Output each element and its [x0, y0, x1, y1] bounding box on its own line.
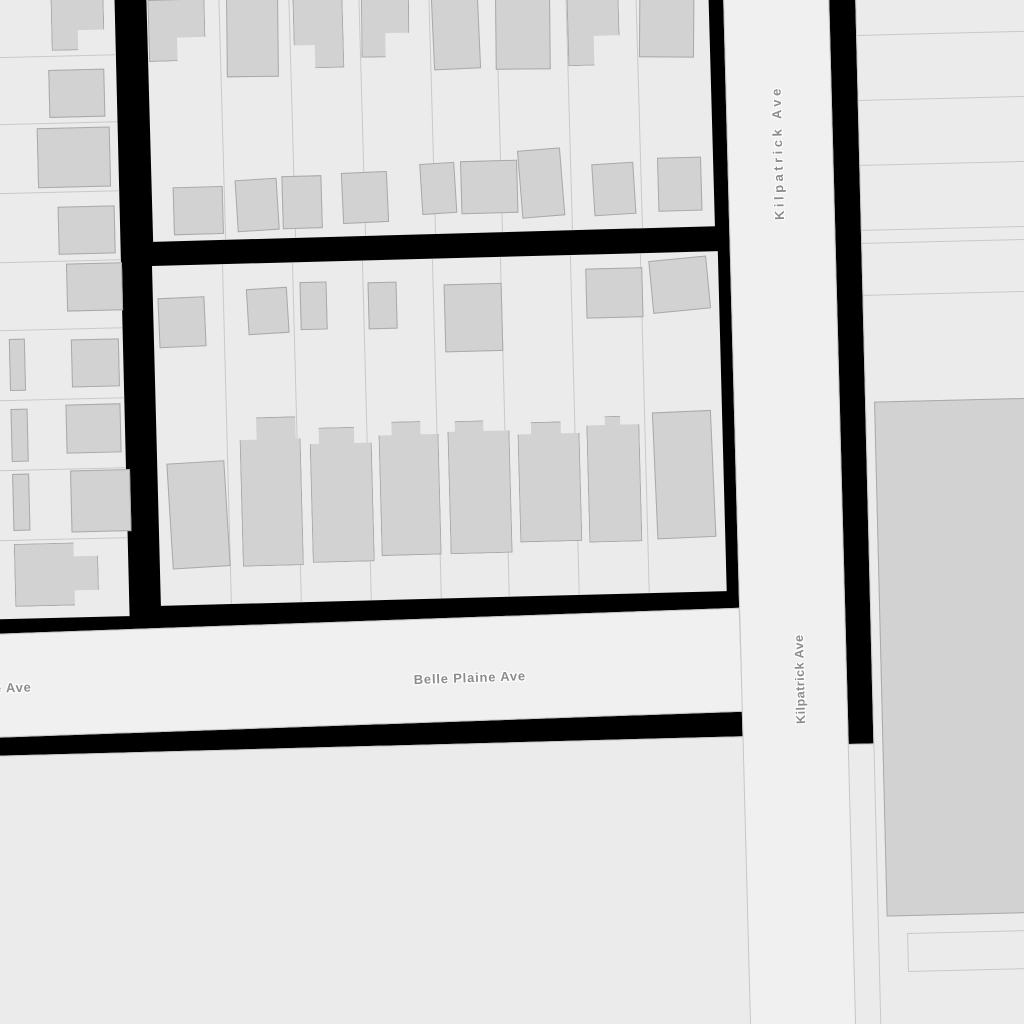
building-footprint — [309, 426, 375, 563]
parcel-line — [907, 933, 909, 972]
building-footprint — [586, 415, 642, 542]
building-footprint — [652, 410, 716, 539]
parcel-line — [0, 54, 116, 59]
building-footprint — [147, 0, 206, 62]
building-footprint — [70, 469, 131, 532]
parcel-line — [862, 239, 1024, 244]
road-label-belle-plaine-partial: e Ave — [0, 680, 32, 697]
building-footprint — [9, 339, 26, 391]
building-footprint — [431, 0, 481, 70]
building-footprint — [292, 0, 344, 69]
building-footprint — [447, 420, 512, 555]
building-footprint — [12, 474, 30, 531]
parcel-line — [570, 255, 580, 595]
parcel-line — [0, 537, 128, 542]
building-footprint — [368, 282, 398, 330]
road-belle-plaine-ave: e Ave Belle Plaine Ave — [0, 608, 743, 738]
parcel-line — [0, 121, 118, 126]
building-footprint — [566, 0, 620, 66]
road-label-belle-plaine: Belle Plaine Ave — [340, 666, 600, 691]
map-canvas[interactable]: e Ave Belle Plaine Ave Kilpatrick Ave Ki… — [0, 0, 1024, 1024]
city-block-north — [146, 0, 715, 242]
building-footprint — [50, 0, 104, 51]
building-footprint — [235, 178, 280, 233]
building-footprint — [874, 398, 1024, 917]
parcel-line — [862, 226, 1024, 231]
building-footprint — [166, 460, 230, 569]
parcel-line — [859, 96, 1024, 101]
building-footprint — [444, 283, 504, 352]
parcel-line — [0, 397, 124, 402]
building-footprint — [341, 171, 389, 224]
building-footprint — [591, 162, 636, 217]
city-block-middle — [152, 251, 727, 606]
parcel-line — [0, 327, 123, 332]
building-footprint — [361, 0, 410, 58]
building-footprint — [239, 416, 304, 567]
road-label-kilpatrick-upper: Kilpatrick Ave — [768, 77, 790, 227]
building-footprint — [14, 542, 100, 607]
building-footprint — [648, 256, 711, 314]
parcel-column-east — [855, 0, 1024, 1024]
building-footprint — [71, 338, 120, 387]
building-footprint — [37, 126, 111, 188]
building-footprint — [495, 0, 551, 70]
building-footprint — [58, 205, 116, 254]
building-footprint — [226, 0, 279, 77]
building-footprint — [419, 162, 457, 215]
city-block-south — [0, 736, 756, 1024]
building-footprint — [246, 287, 290, 335]
building-footprint — [517, 421, 582, 543]
building-footprint — [657, 157, 702, 212]
building-footprint — [585, 267, 643, 318]
building-footprint — [65, 403, 121, 453]
parcel-line — [0, 190, 119, 195]
road-label-kilpatrick-lower: Kilpatrick Ave — [790, 609, 812, 749]
building-footprint — [639, 0, 695, 58]
building-footprint — [517, 147, 565, 218]
city-block-west — [0, 0, 130, 620]
building-footprint — [10, 409, 28, 462]
parcel-line — [860, 161, 1024, 166]
building-footprint — [48, 69, 105, 118]
building-footprint — [173, 186, 224, 235]
building-footprint — [460, 160, 518, 215]
parcel-line — [908, 967, 1024, 972]
building-footprint — [299, 281, 327, 330]
parcel-line — [863, 291, 1024, 296]
building-footprint — [66, 262, 123, 311]
building-footprint — [281, 175, 322, 229]
building-footprint — [378, 421, 441, 557]
building-footprint — [157, 296, 206, 348]
parcel-line — [857, 31, 1024, 36]
parcel-line — [907, 929, 1024, 934]
